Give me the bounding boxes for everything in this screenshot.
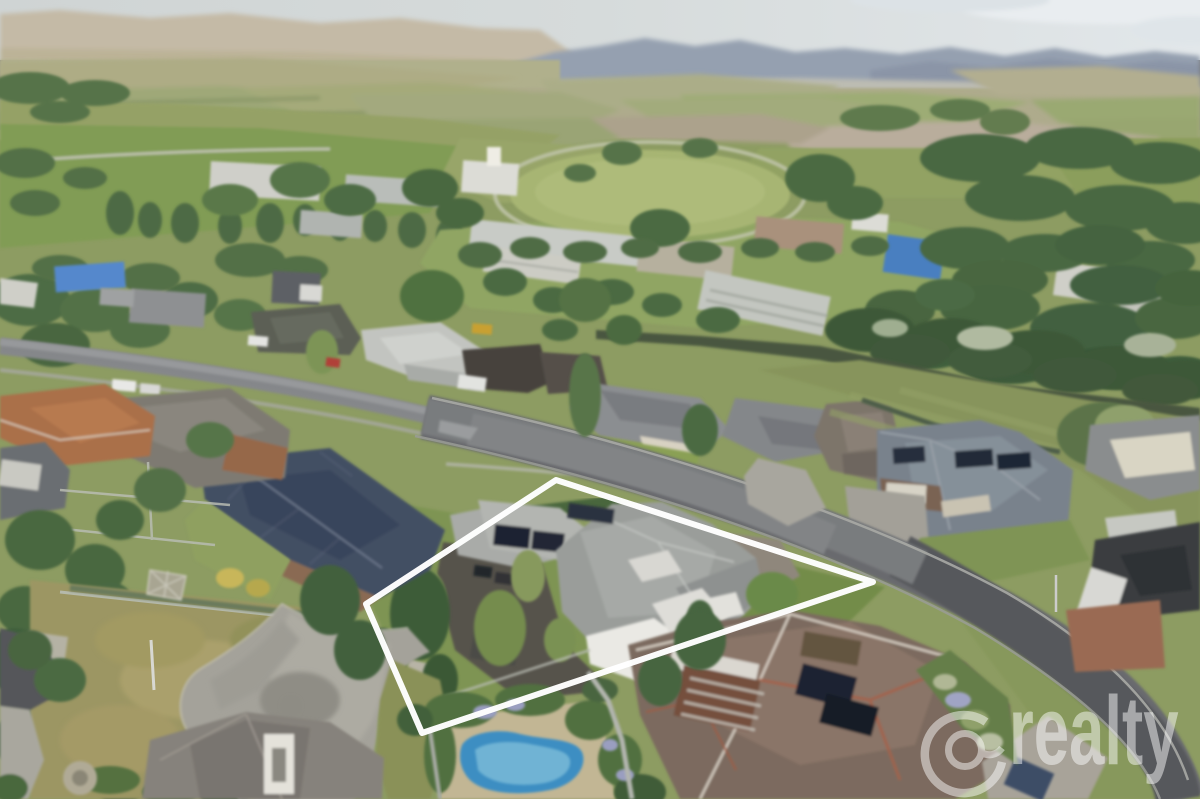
svg-text:realty: realty — [1009, 678, 1179, 786]
